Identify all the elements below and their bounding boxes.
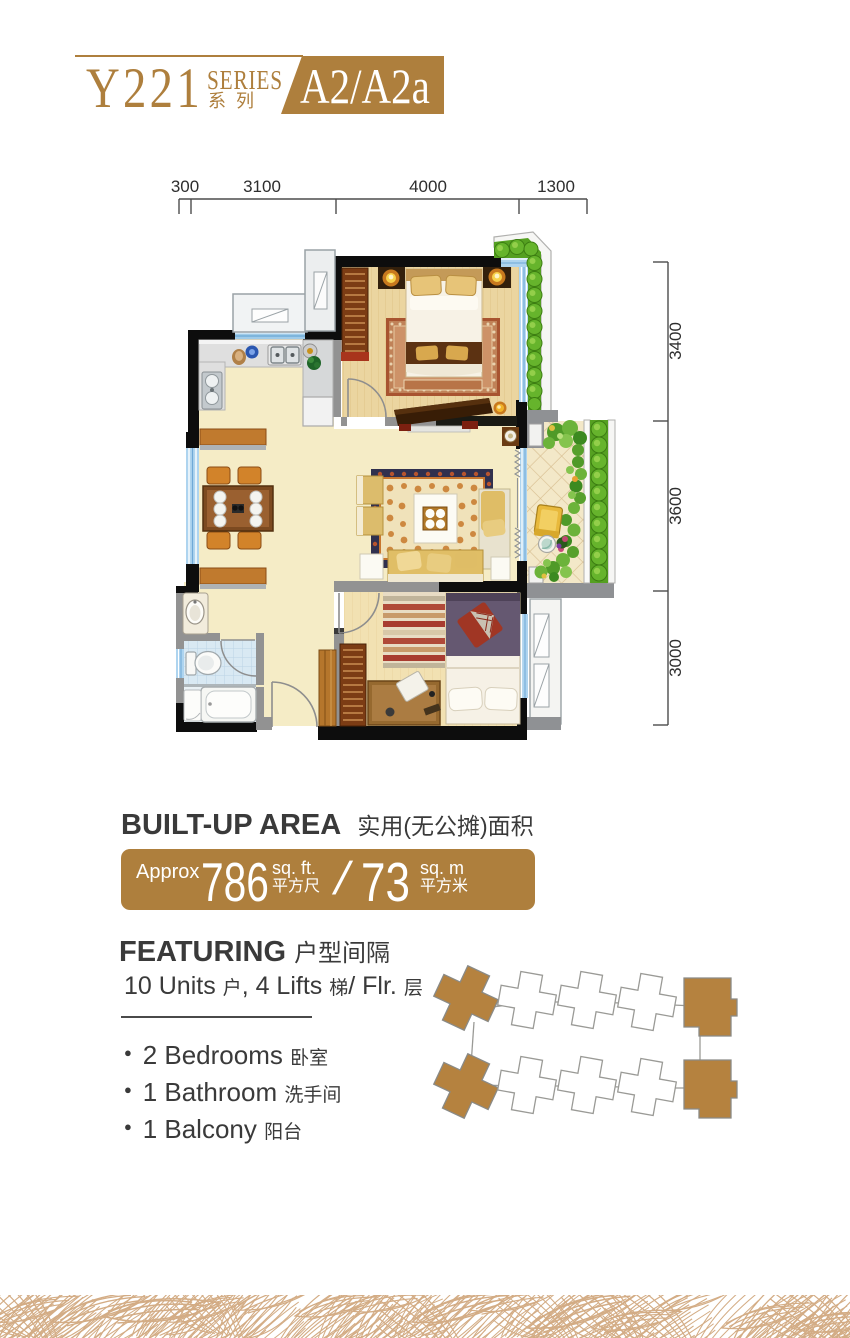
svg-text:1300: 1300 [537,177,575,196]
svg-text:3600: 3600 [666,487,685,525]
svg-text:300: 300 [171,177,199,196]
svg-text:3000: 3000 [666,639,685,677]
svg-text:3400: 3400 [666,322,685,360]
svg-text:3100: 3100 [243,177,281,196]
svg-text:4000: 4000 [409,177,447,196]
